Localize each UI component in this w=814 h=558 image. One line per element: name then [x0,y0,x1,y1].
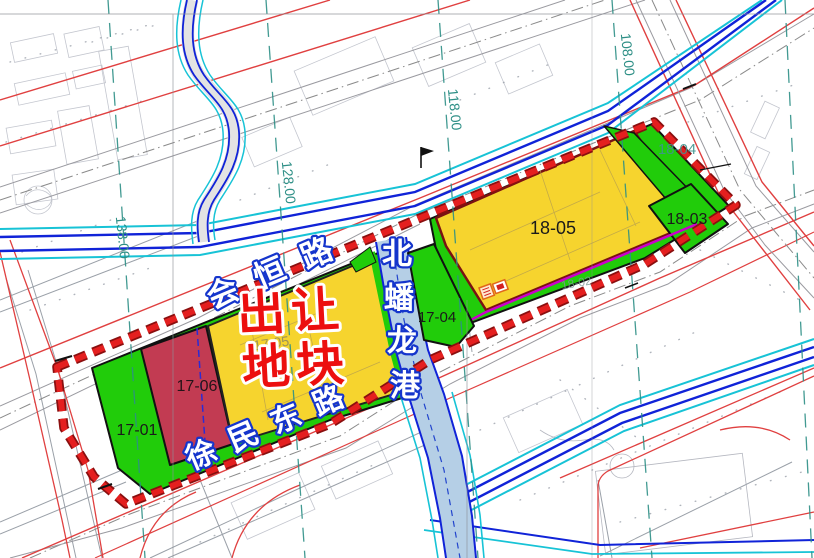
highlight-label-line2: 地块 [241,337,352,396]
parcel-label-17-06: 17-06 [177,378,218,395]
parcel-label-18-05: 18-05 [530,218,576,238]
planning-map: 138.00 128.00 118.00 108.00 17-05 18-02 … [0,0,814,558]
parcel-label-18-04: 18-04 [658,141,696,158]
parcel-label-18-03: 18-03 [667,211,708,228]
map-canvas: 138.00 128.00 118.00 108.00 17-05 18-02 … [0,0,814,558]
river-label-char-3: 龙 [387,325,417,358]
river-label-char-2: 蟠 [384,282,415,315]
parcel-label-17-04: 17-04 [418,309,456,326]
river-label-char-1: 北 [382,238,412,271]
highlight-label: 出让 地块 [236,283,352,396]
river-label-char-4: 港 [390,370,421,403]
highlight-label-line1: 出让 [236,283,347,342]
parcel-label-17-01: 17-01 [117,422,158,439]
